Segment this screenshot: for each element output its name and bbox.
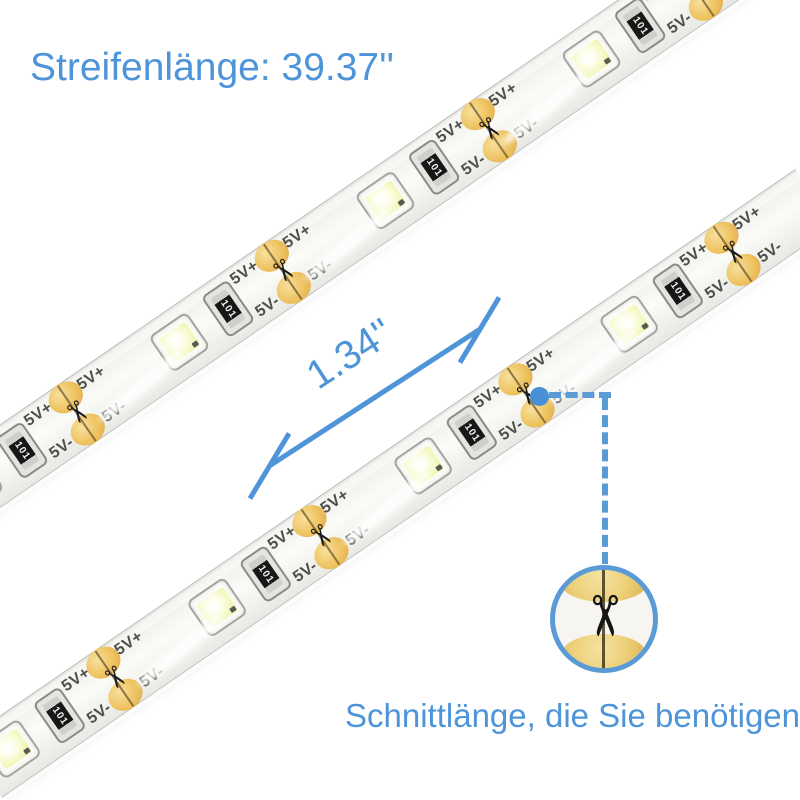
cut-length-caption: Schnittlänge, die Sie benötigen <box>345 697 800 735</box>
resistor-code-label: 101 <box>630 15 650 37</box>
resistor-code-label: 101 <box>218 298 238 320</box>
resistor-code-label: 101 <box>12 440 32 462</box>
resistor-code-label: 101 <box>50 705 70 727</box>
product-image: 101101101101✂5V+5V+5V-5V-✂5V+5V+5V-5V-✂5… <box>0 0 800 800</box>
resistor-body: 101 <box>660 271 695 311</box>
resistor-code-label: 101 <box>256 563 276 585</box>
resistor-code-label: 101 <box>462 421 482 443</box>
voltage-label-negative: 5V- <box>245 287 291 327</box>
magnifier-circle: ✂ <box>550 565 658 673</box>
voltage-label-negative: 5V- <box>657 4 703 44</box>
resistor-body: 101 <box>42 696 77 736</box>
voltage-label-negative: 5V- <box>489 411 535 451</box>
strip-length-title: Streifenlänge: 39.37'' <box>30 46 394 90</box>
voltage-label-negative: 5V- <box>282 552 328 592</box>
led-chip <box>0 718 43 780</box>
voltage-label-negative: 5V- <box>39 429 85 469</box>
voltage-label-negative: 5V- <box>451 146 497 186</box>
resistor-body: 101 <box>211 289 246 329</box>
scissors-icon: ✂ <box>572 587 636 645</box>
led-chip <box>0 453 5 515</box>
resistor-code-label: 101 <box>424 156 444 178</box>
cut-point-dot <box>530 387 549 406</box>
voltage-label-negative: 5V- <box>695 269 741 309</box>
voltage-label-negative: 5V- <box>76 694 122 734</box>
resistor-body: 101 <box>454 413 489 453</box>
resistor-body: 101 <box>417 148 452 188</box>
measurement-tick-left <box>248 432 291 500</box>
callout-dashed-line-vertical <box>602 398 608 564</box>
measurement-tick-right <box>458 296 501 364</box>
resistor-code-label: 101 <box>668 280 688 302</box>
resistor-body: 101 <box>4 431 39 471</box>
voltage-label-negative: 5V- <box>747 233 793 273</box>
resistor-body: 101 <box>623 6 658 46</box>
resistor-body: 101 <box>248 554 283 594</box>
